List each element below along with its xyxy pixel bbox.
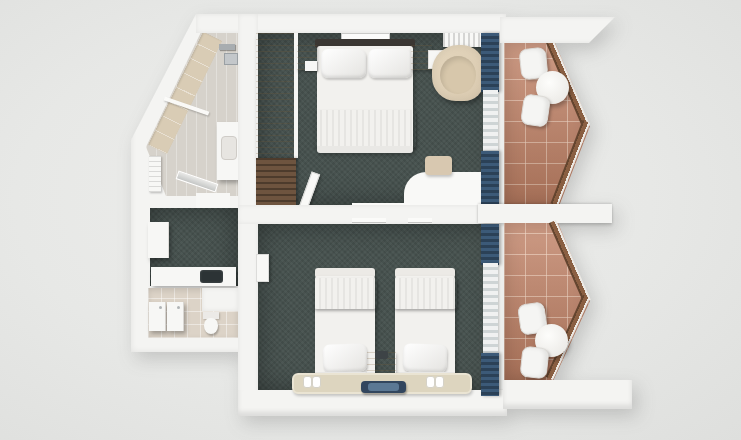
hall-cabinet <box>148 222 169 258</box>
double-bed-blue-runner <box>314 110 416 148</box>
navy-bench-mat-inner <box>368 383 399 391</box>
wardrobe <box>256 33 294 158</box>
sheer-curtain-twin <box>483 263 498 355</box>
twin-room-door-leaf <box>256 254 269 282</box>
shower-fixture-icon <box>219 44 235 50</box>
shower-shelf-icon <box>224 53 238 65</box>
twin-bed-right-pillow <box>403 343 448 373</box>
curtain-twin-north <box>481 224 499 265</box>
double-bed-foot-frame <box>317 146 413 153</box>
luggage-bench <box>256 158 296 205</box>
vanity-faucet-icon <box>177 306 180 309</box>
balcony-lower-chair-south <box>519 346 549 380</box>
balcony-lower-bottom-wall <box>503 380 632 409</box>
slipper-icon <box>435 376 444 388</box>
tv-mark-twin-room-b <box>408 218 432 223</box>
floorplan-render <box>0 0 741 440</box>
balcony-upper-chair-south <box>520 93 551 127</box>
desk-chair <box>425 156 452 175</box>
phone-on-twin-nightstand <box>375 351 388 359</box>
desk <box>404 172 483 205</box>
slipper-icon <box>303 376 312 388</box>
balcony-divider-wall <box>478 204 612 223</box>
curtain-double-south <box>481 151 499 207</box>
double-bed-pillow-left <box>321 49 366 78</box>
sheer-curtain-double <box>483 90 498 153</box>
armchair-cushion <box>440 56 476 94</box>
vanity-sink-basin <box>221 136 237 160</box>
towel-radiator <box>149 156 161 192</box>
kitchenette-sink <box>200 270 223 283</box>
twin-bed-left-blue-runner <box>313 278 377 309</box>
kitchenette-counter <box>151 267 236 286</box>
toilet-bowl <box>204 318 218 334</box>
nightstand-left-lamp <box>305 61 317 71</box>
tv-mark-twin-room-a <box>352 218 386 223</box>
twin-bed-left-pillow <box>323 343 368 373</box>
slipper-icon <box>312 376 321 388</box>
vanity-unit-2 <box>167 302 184 331</box>
twin-bed-right-blue-runner <box>393 278 457 309</box>
curtain-double-north <box>481 33 499 92</box>
slipper-icon <box>426 376 435 388</box>
double-bed-pillow-right <box>368 49 412 78</box>
balcony-upper-top-wall <box>500 17 615 43</box>
vanity-unit-1 <box>149 302 166 331</box>
vanity-faucet-icon <box>159 306 162 309</box>
bathroom-lower-wall-block <box>202 288 238 311</box>
curtain-twin-south <box>481 353 499 396</box>
